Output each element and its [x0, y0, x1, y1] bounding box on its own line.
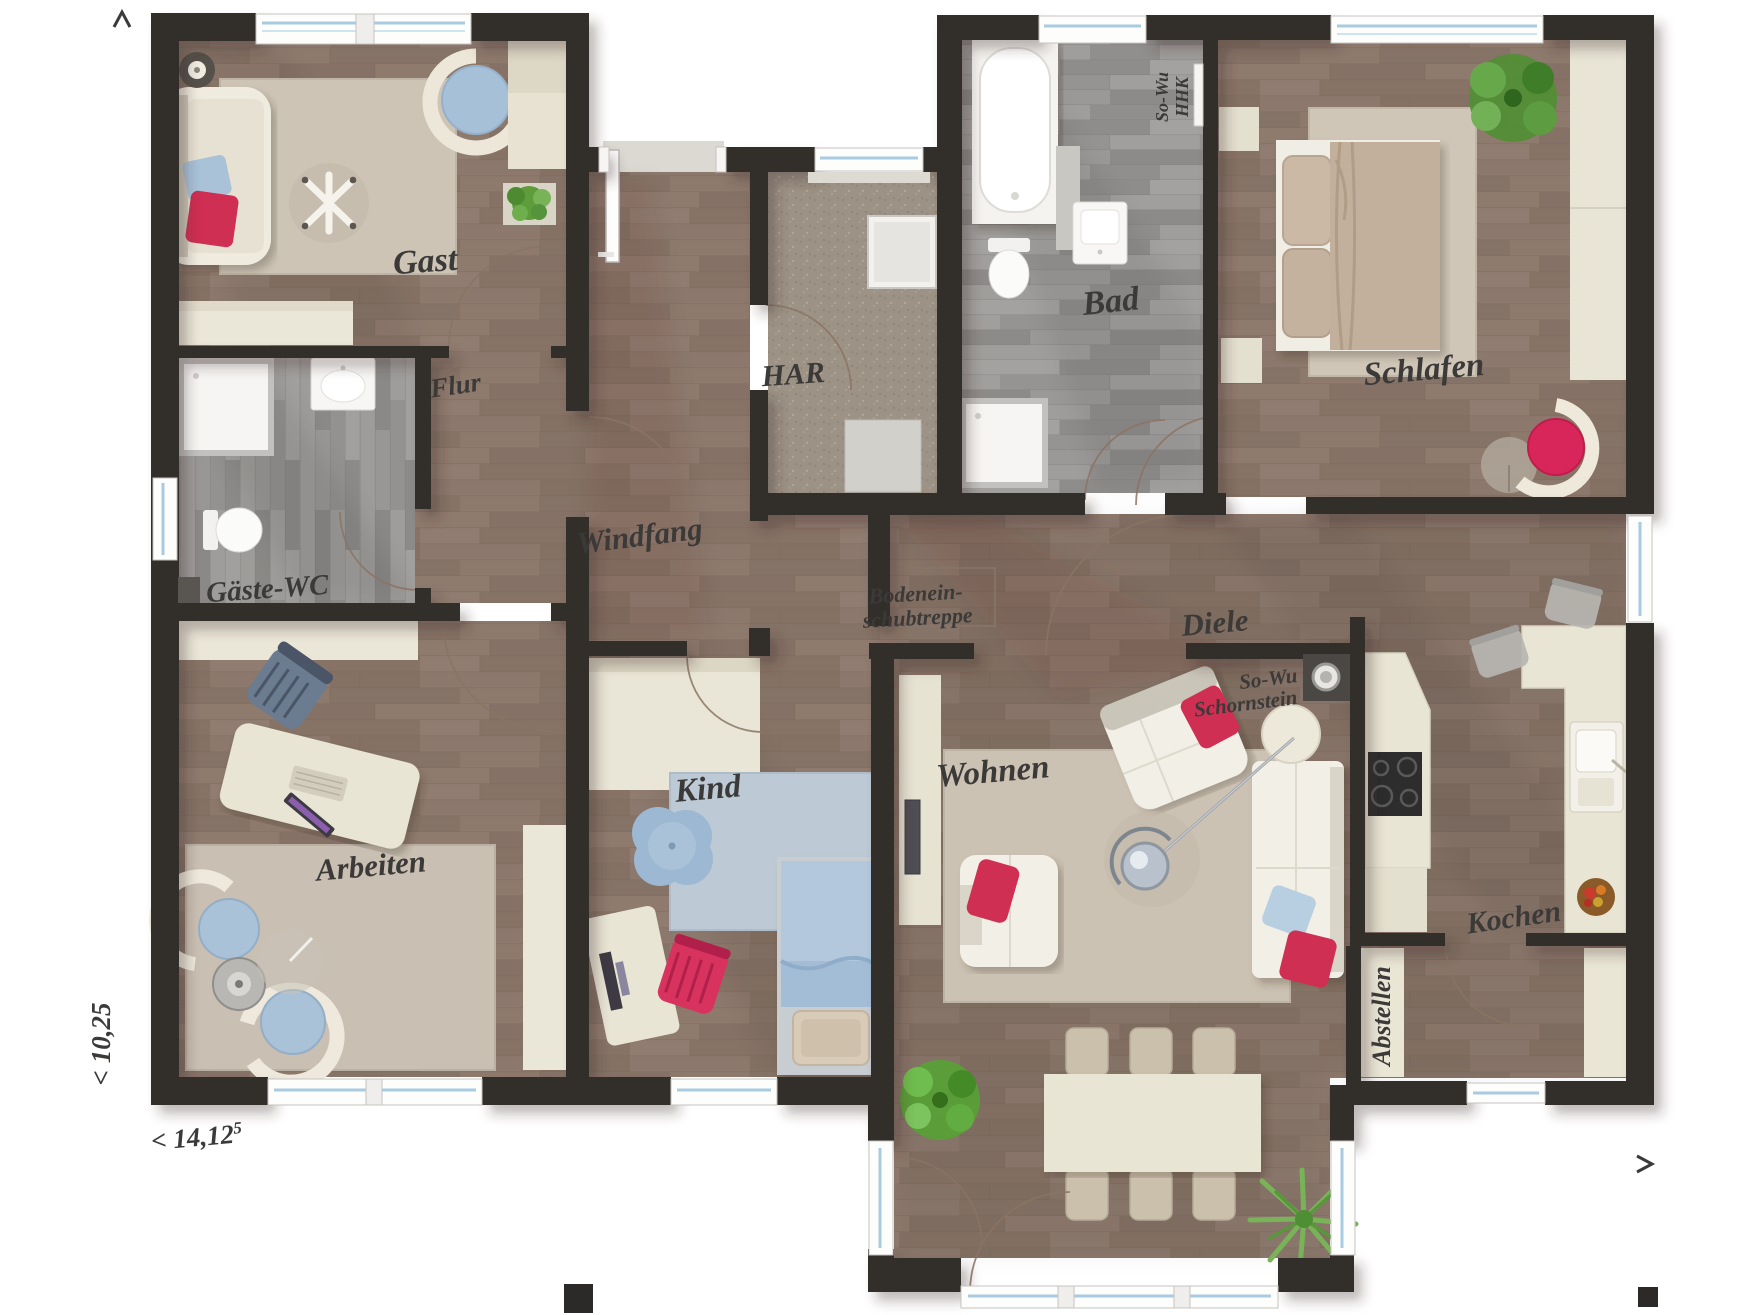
svg-text:So-Wu: So-Wu: [1152, 72, 1172, 122]
svg-text:Gast: Gast: [392, 241, 460, 282]
svg-text:HHK: HHK: [1172, 75, 1192, 118]
svg-text:HAR: HAR: [759, 356, 826, 393]
svg-text:Kind: Kind: [672, 768, 742, 810]
svg-text:< 10,25: < 10,25: [86, 1003, 116, 1086]
svg-text:Bad: Bad: [1080, 280, 1142, 323]
svg-text:Diele: Diele: [1179, 602, 1250, 643]
svg-text:Abstellen: Abstellen: [1367, 966, 1396, 1068]
